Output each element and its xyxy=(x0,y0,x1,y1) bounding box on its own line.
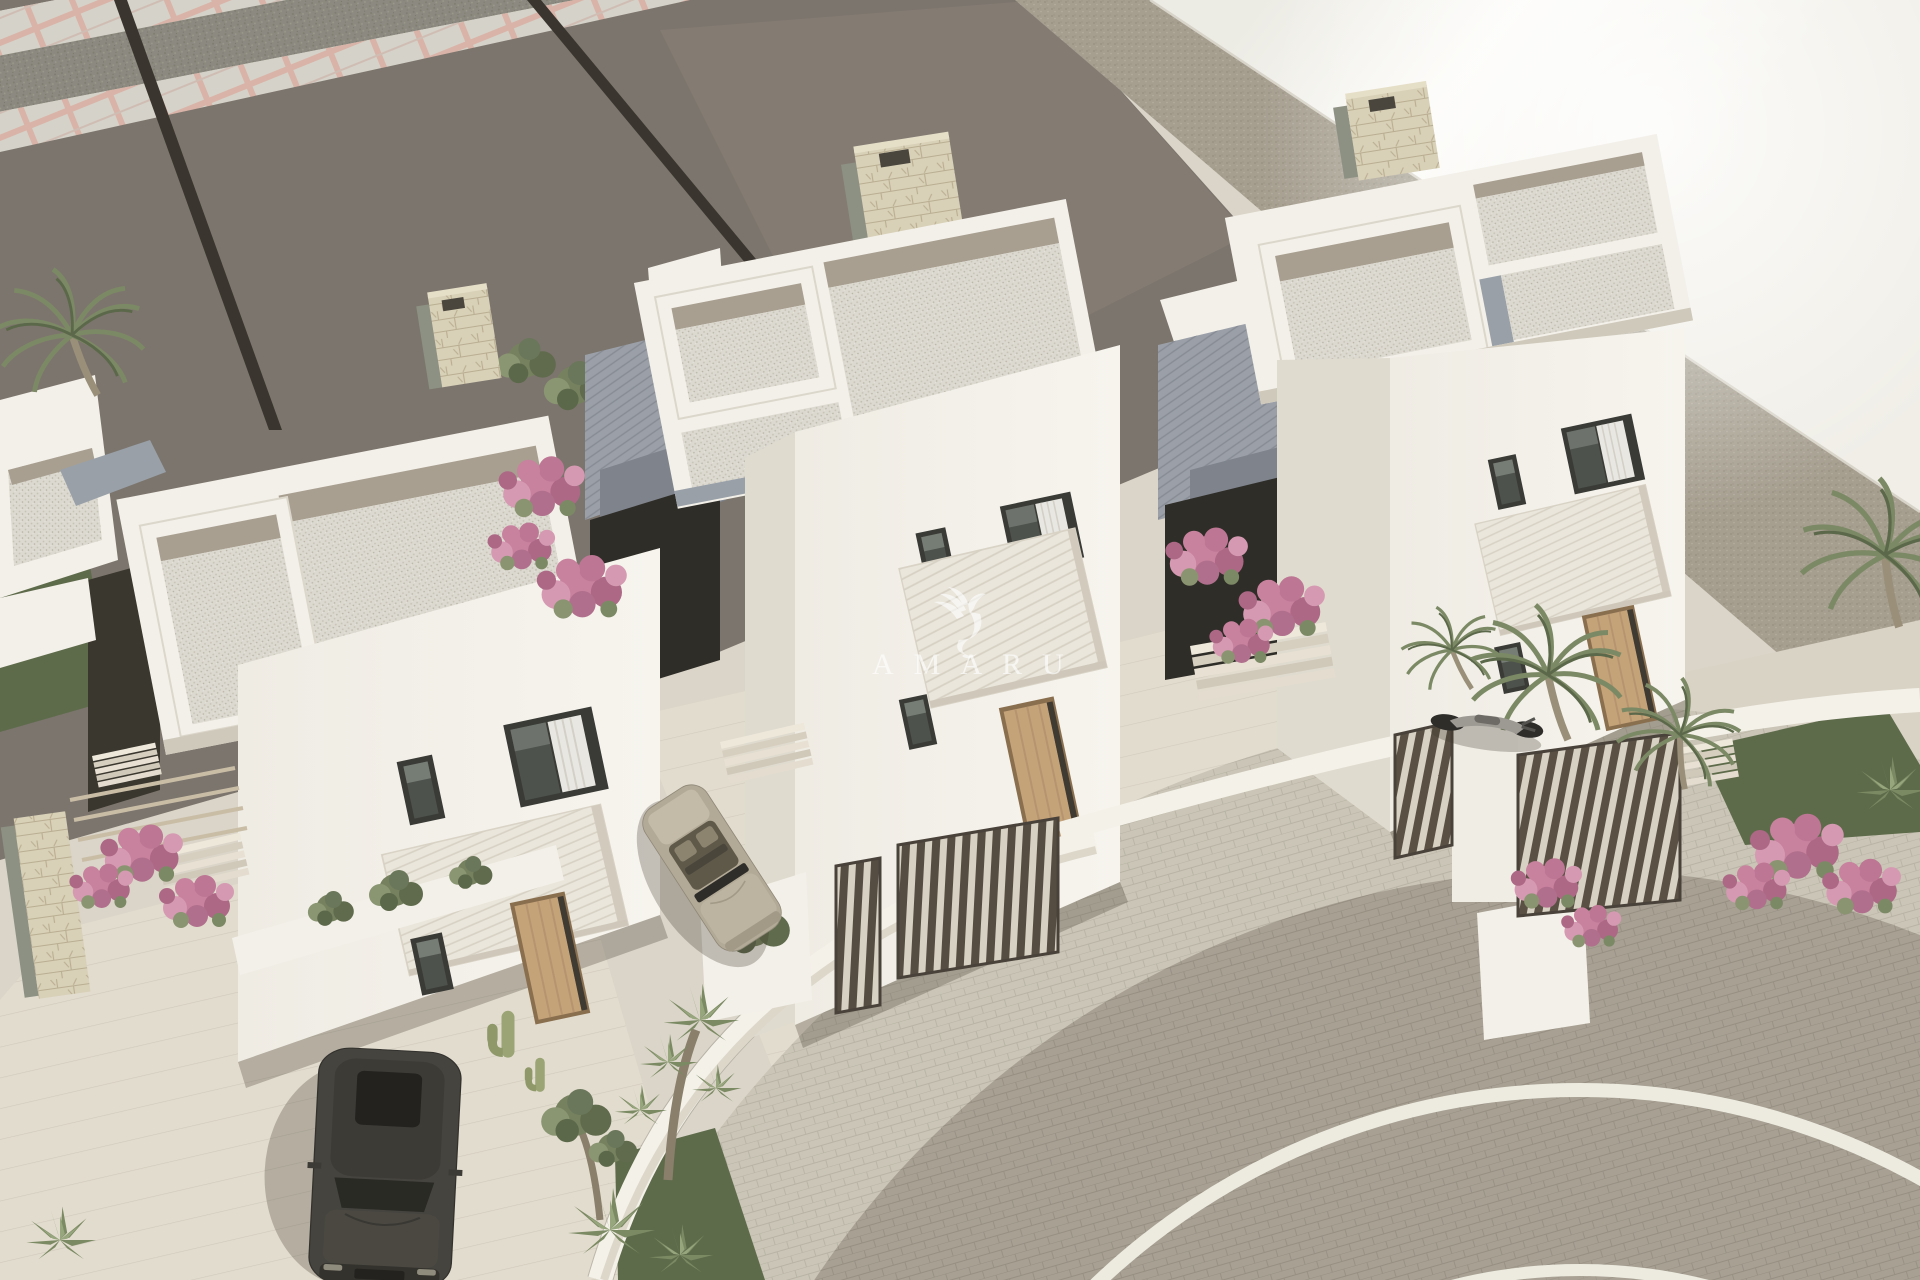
slatted-gate xyxy=(898,818,1058,978)
slatted-gate xyxy=(1395,722,1452,858)
aerial-villa-render: AMARU xyxy=(0,0,1920,1280)
watermark-text: AMARU xyxy=(872,648,1084,681)
stone-chimney xyxy=(1331,81,1440,183)
slatted-gate xyxy=(836,858,880,1013)
